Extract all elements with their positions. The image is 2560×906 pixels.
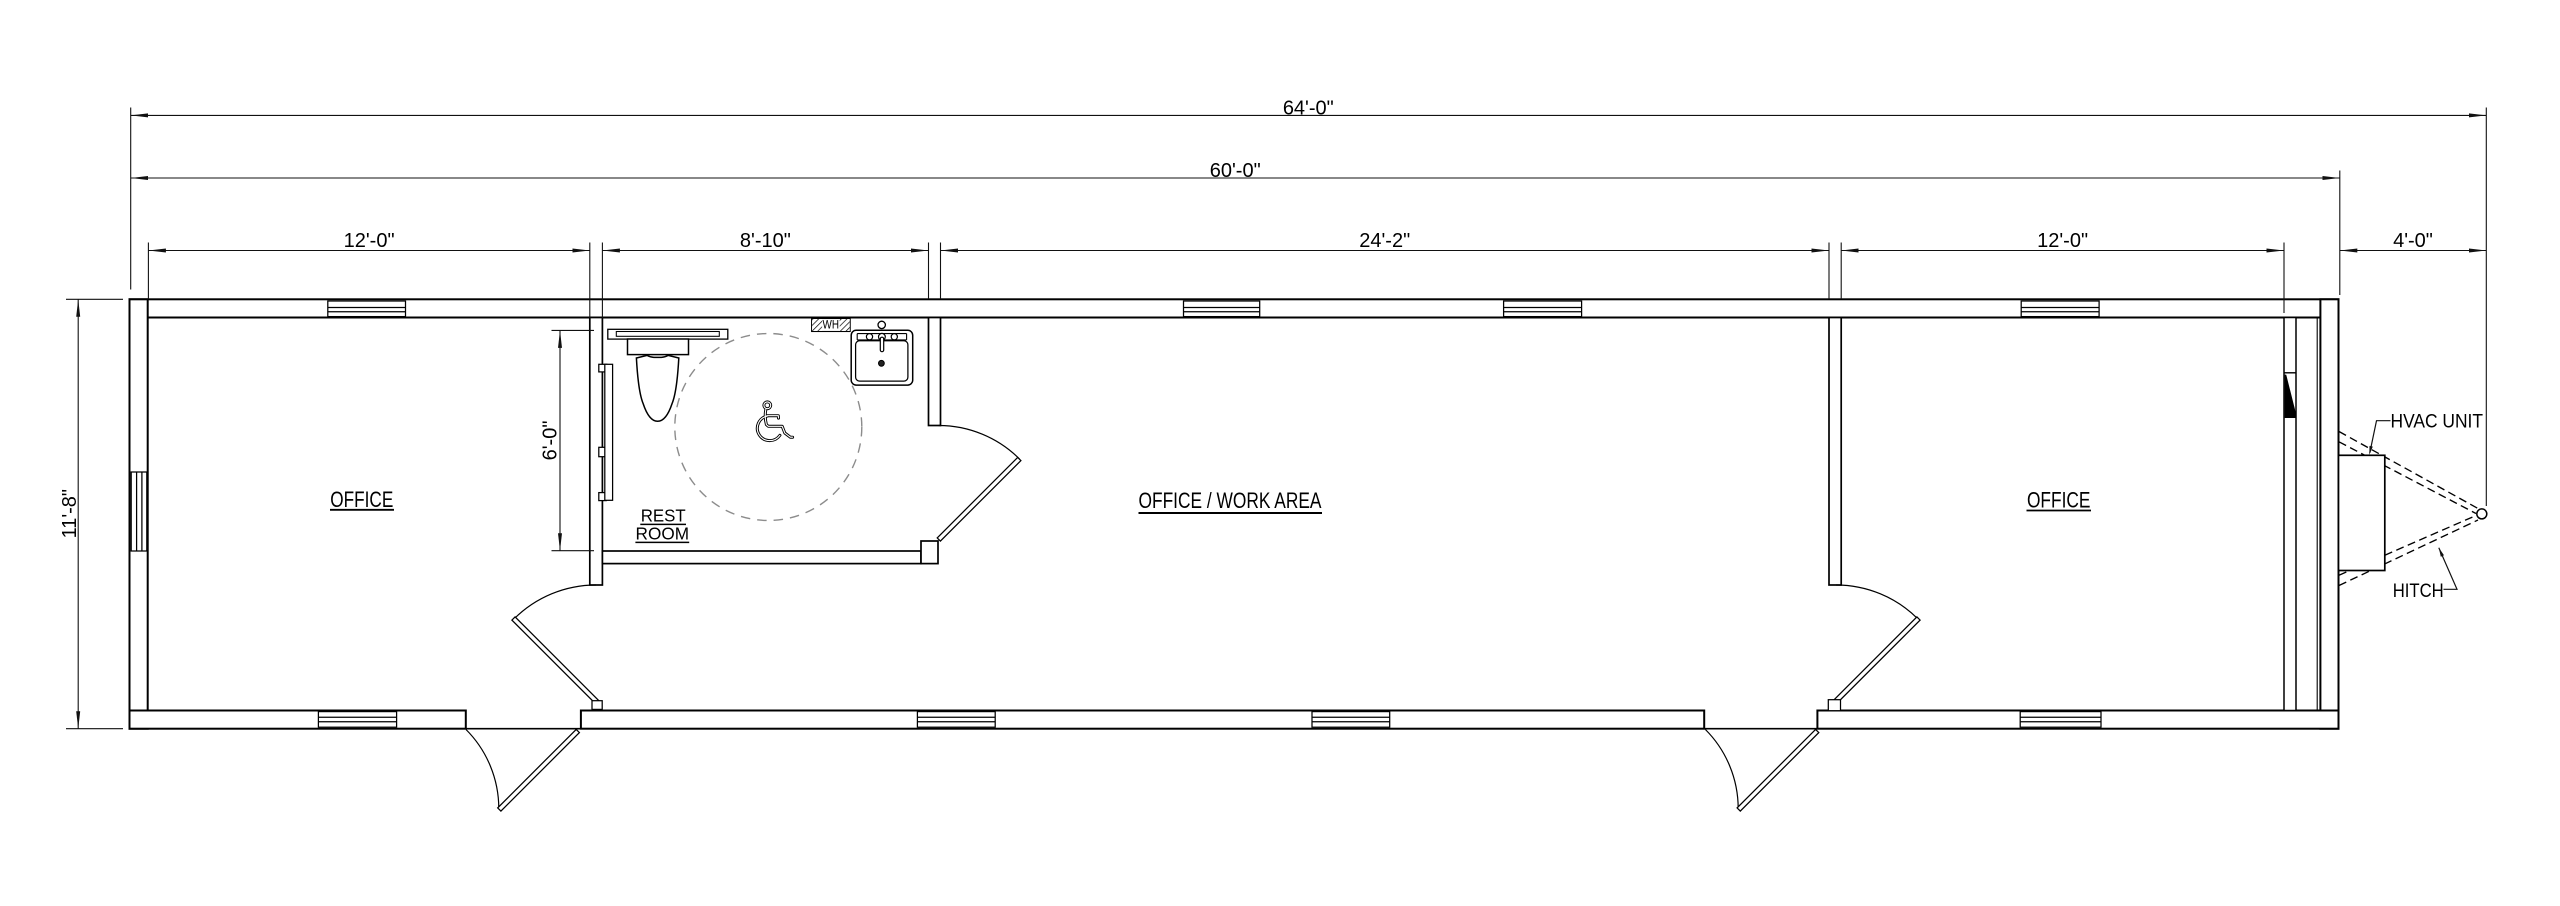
svg-text:OFFICE: OFFICE: [330, 487, 393, 512]
svg-text:REST: REST: [641, 506, 686, 526]
svg-text:24'-2": 24'-2": [1359, 230, 1410, 252]
svg-text:ROOM: ROOM: [636, 524, 690, 544]
svg-text:OFFICE: OFFICE: [2027, 488, 2091, 513]
svg-text:6'-0": 6'-0": [540, 421, 562, 461]
svg-text:64'-0": 64'-0": [1283, 97, 1334, 119]
svg-text:8'-10": 8'-10": [740, 230, 791, 252]
svg-text:OFFICE / WORK AREA: OFFICE / WORK AREA: [1139, 488, 1322, 513]
svg-text:HITCH: HITCH: [2393, 581, 2444, 602]
svg-text:12'-0": 12'-0": [344, 230, 395, 252]
svg-text:4'-0": 4'-0": [2393, 230, 2433, 252]
svg-text:11'-8": 11'-8": [59, 489, 81, 538]
svg-text:12'-0": 12'-0": [2037, 230, 2088, 252]
svg-text:HVAC UNIT: HVAC UNIT: [2391, 411, 2484, 432]
svg-text:WH: WH: [823, 320, 840, 332]
svg-text:60'-0": 60'-0": [1210, 160, 1261, 182]
